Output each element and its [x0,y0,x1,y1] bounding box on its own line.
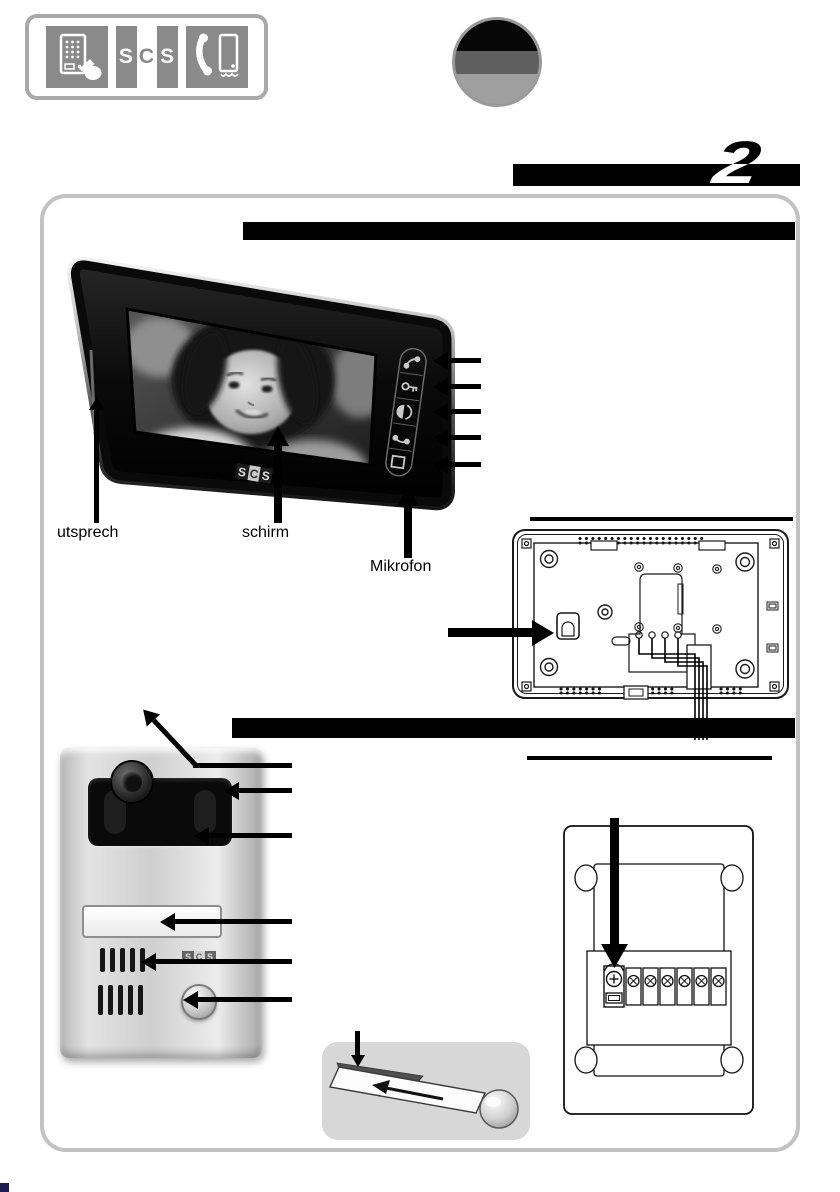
chapter-number: 2 [674,134,800,192]
rear-diagram-title-line [530,517,793,521]
grille-slot [118,985,123,1015]
grille-slot [110,948,115,972]
callout-arrow-lens-segment [193,763,292,768]
section-bar-monitor [243,222,795,240]
scs-letter: S [157,26,178,88]
manual-page: { "chapter": { "number": "2" }, "brand":… [0,0,840,1192]
inset-call-button [480,1090,518,1128]
callout-arrow-brightness-button [448,409,481,414]
callout-arrow-camera-window [239,788,292,793]
grille-slot [98,985,103,1015]
callout-arrow-ir-led [209,833,292,838]
door-panel-hand-icon [46,26,108,88]
callout-arrow-door-release-button [448,384,481,389]
label-speaker: utsprech [57,524,118,542]
callout-arrow-name-label [175,919,292,924]
grille-slot [120,948,125,972]
callout-arrow-screen [274,446,282,523]
grille-slot [108,985,113,1015]
callout-arrow-handset-button [448,358,481,363]
callout-arrow-display-button [448,462,481,467]
grille-slot [100,948,105,972]
brand-logo-box: SCS [25,14,268,100]
callout-arrow-microphone [404,506,412,558]
scs-letter: C [136,26,157,88]
callout-arrow-label-slot [355,1031,360,1055]
callout-arrow-speaker [94,410,99,523]
adjustment-terminal [604,964,624,1007]
label-microphone: Mikrofon [370,558,431,576]
handset-and-panel-icon [186,26,248,88]
door-station-rear-diagram [558,818,760,1120]
grille-slot [138,985,143,1015]
grille-slot [128,985,133,1015]
wiring-title-line [527,756,772,760]
label-screen: schirm [242,524,289,542]
scs-logo: SCS [116,26,178,88]
callout-arrow-grille [156,959,292,964]
callout-arrow-hangup-button [448,435,481,440]
scs-letter: S [116,26,137,88]
germany-flag-circle-icon [452,17,542,107]
grille-slot [130,948,135,972]
callout-arrow-bracket-button [448,628,532,637]
camera-lens-inner [122,772,142,792]
callout-arrow-call-button [198,997,292,1002]
page-corner-mark [0,1183,9,1192]
section-bar-door-station [232,718,795,738]
